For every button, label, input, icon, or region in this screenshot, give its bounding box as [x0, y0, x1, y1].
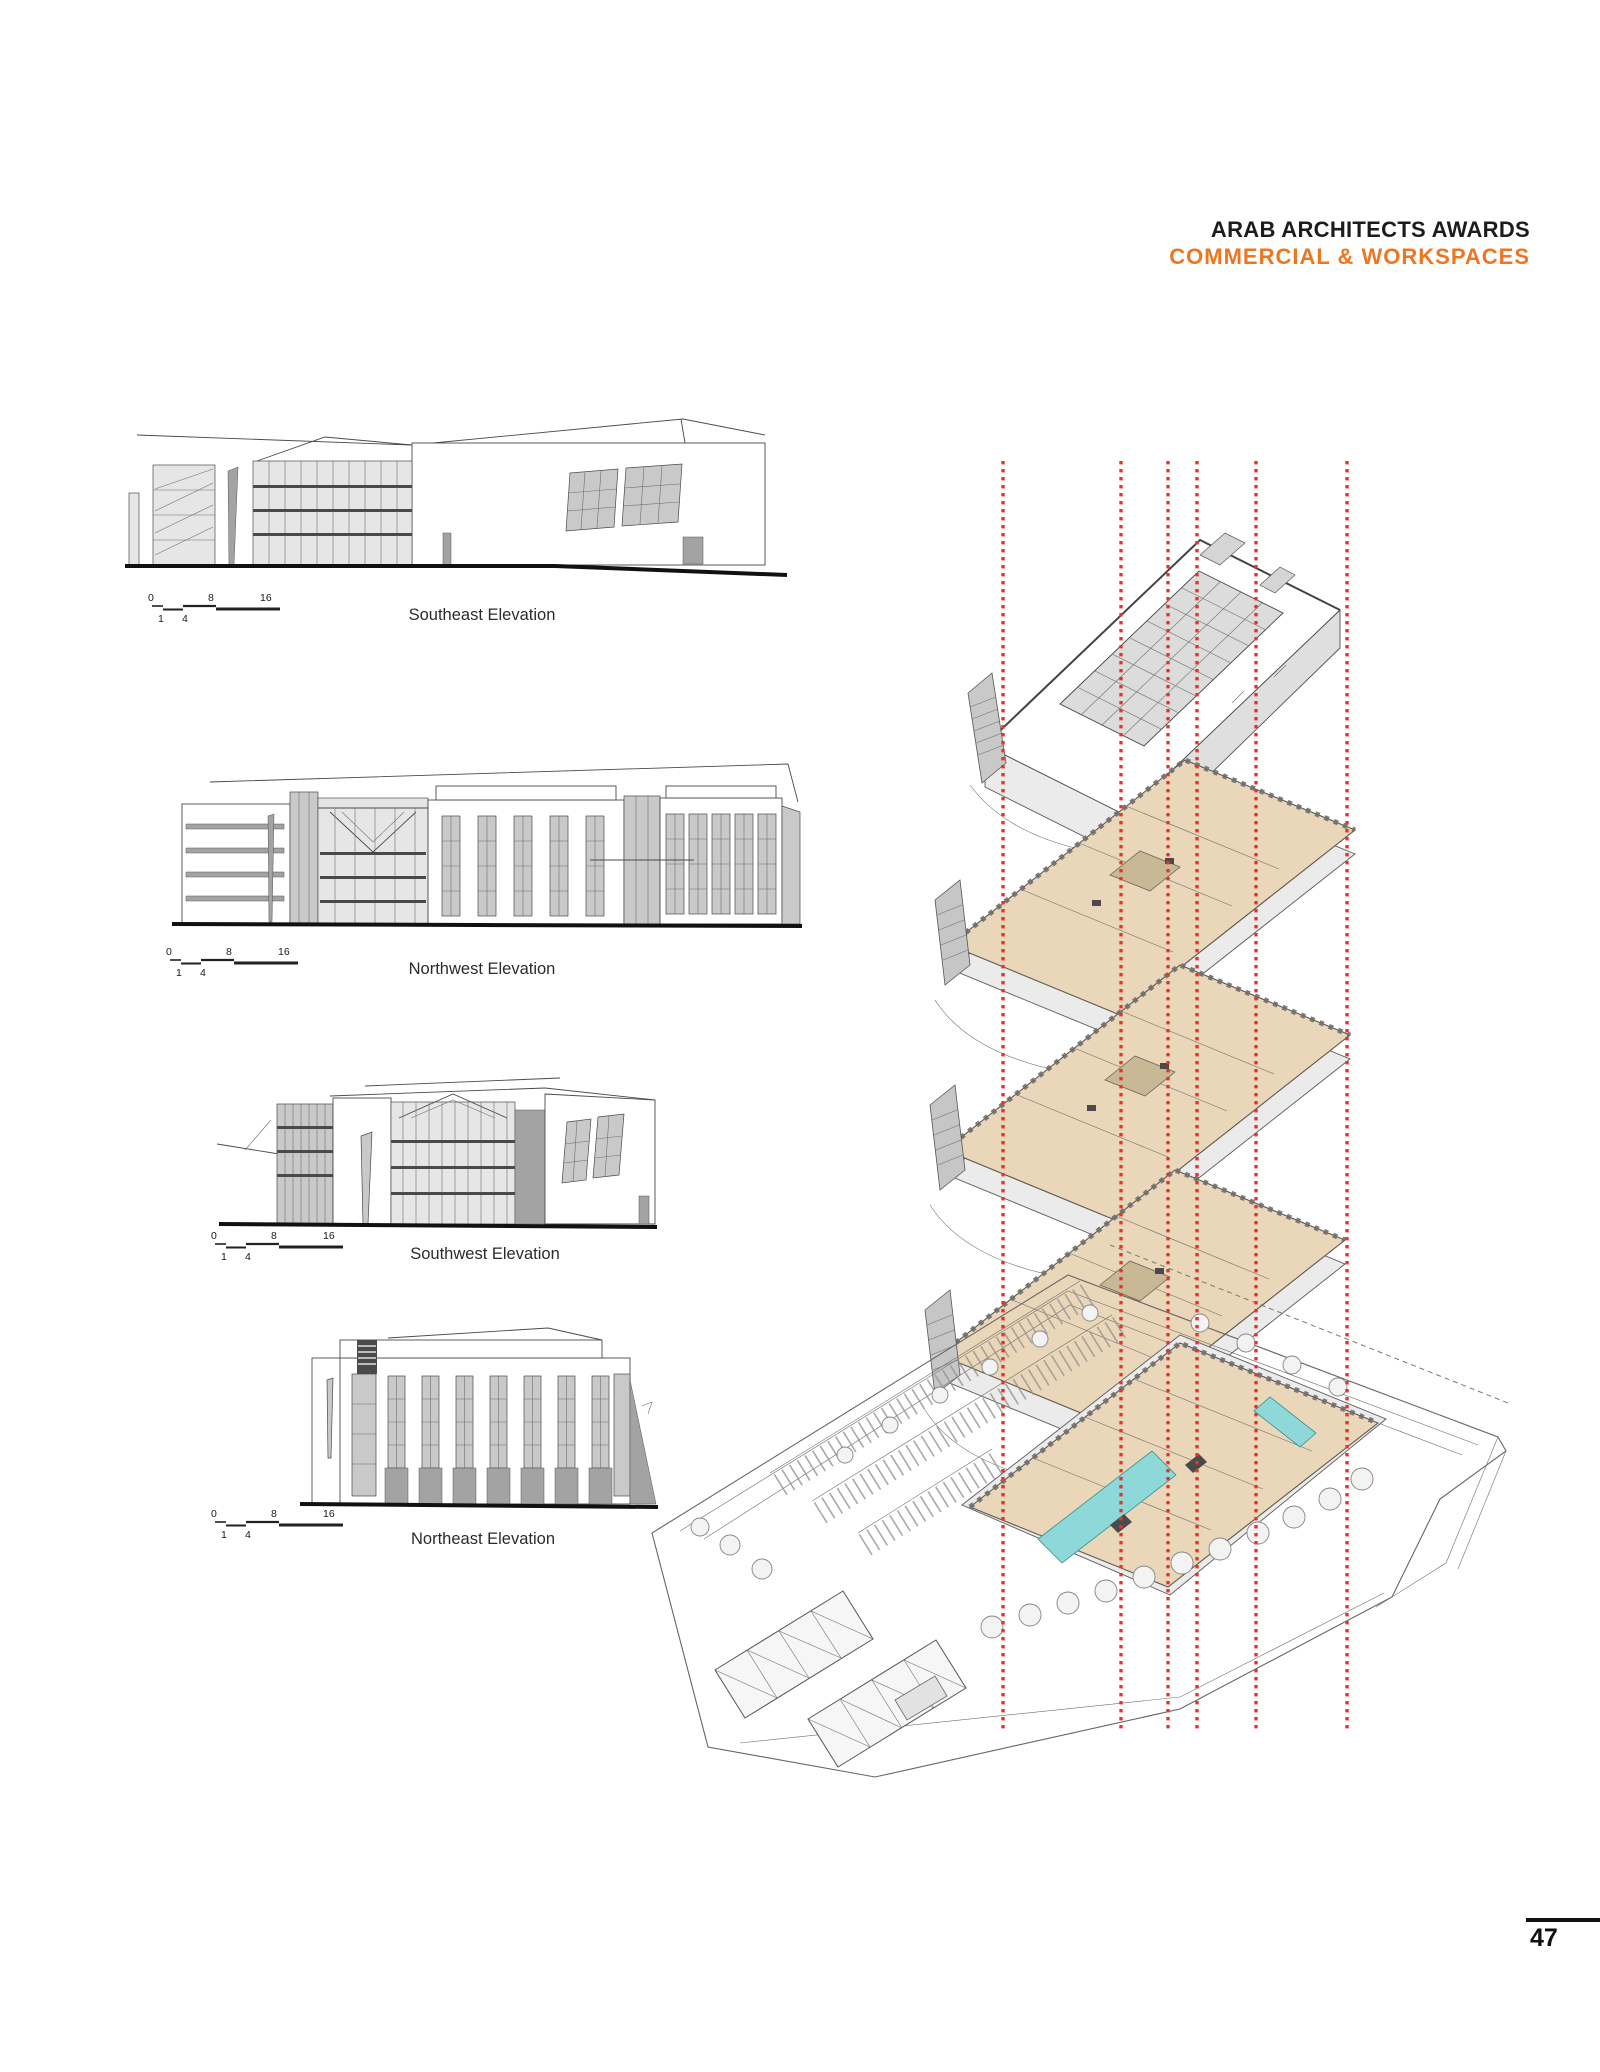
elevation-label-northwest: Northwest Elevation	[382, 960, 582, 979]
scale-tick: 1	[221, 1251, 227, 1263]
scale-tick: 1	[221, 1529, 227, 1541]
elevation-label-southwest: Southwest Elevation	[385, 1245, 585, 1264]
scale-tick: 4	[200, 967, 206, 979]
elevation-label-northeast: Northeast Elevation	[383, 1530, 583, 1549]
portfolio-page: ARAB ARCHITECTS AWARDS COMMERCIAL & WORK…	[0, 0, 1600, 2072]
scale-bar-northwest: 0 8 16 1 4	[168, 946, 300, 982]
elevation-label-southeast: Southeast Elevation	[382, 606, 582, 625]
scale-tick: 1	[158, 613, 164, 625]
southwest-elevation-drawing	[215, 1048, 660, 1235]
exploded-axonometric-drawing	[640, 445, 1510, 1785]
scale-bar-southeast: 0 8 16 1 4	[150, 592, 282, 628]
scale-bar-graphic	[168, 957, 300, 967]
scale-bar-southwest: 0 8 16 1 4	[213, 1230, 345, 1266]
scale-tick: 4	[245, 1251, 251, 1263]
page-header: ARAB ARCHITECTS AWARDS COMMERCIAL & WORK…	[1169, 216, 1530, 270]
page-number: 47	[1530, 1924, 1558, 1953]
scale-bar-graphic	[213, 1519, 345, 1529]
footer-rule	[1526, 1918, 1600, 1922]
northeast-elevation-drawing	[300, 1318, 660, 1513]
scale-bar-graphic	[213, 1241, 345, 1251]
scale-tick: 4	[245, 1529, 251, 1541]
header-subtitle: COMMERCIAL & WORKSPACES	[1169, 243, 1530, 270]
header-title: ARAB ARCHITECTS AWARDS	[1169, 216, 1530, 243]
scale-tick: 4	[182, 613, 188, 625]
scale-tick: 1	[176, 967, 182, 979]
scale-bar-graphic	[150, 603, 282, 613]
scale-bar-northeast: 0 8 16 1 4	[213, 1508, 345, 1544]
